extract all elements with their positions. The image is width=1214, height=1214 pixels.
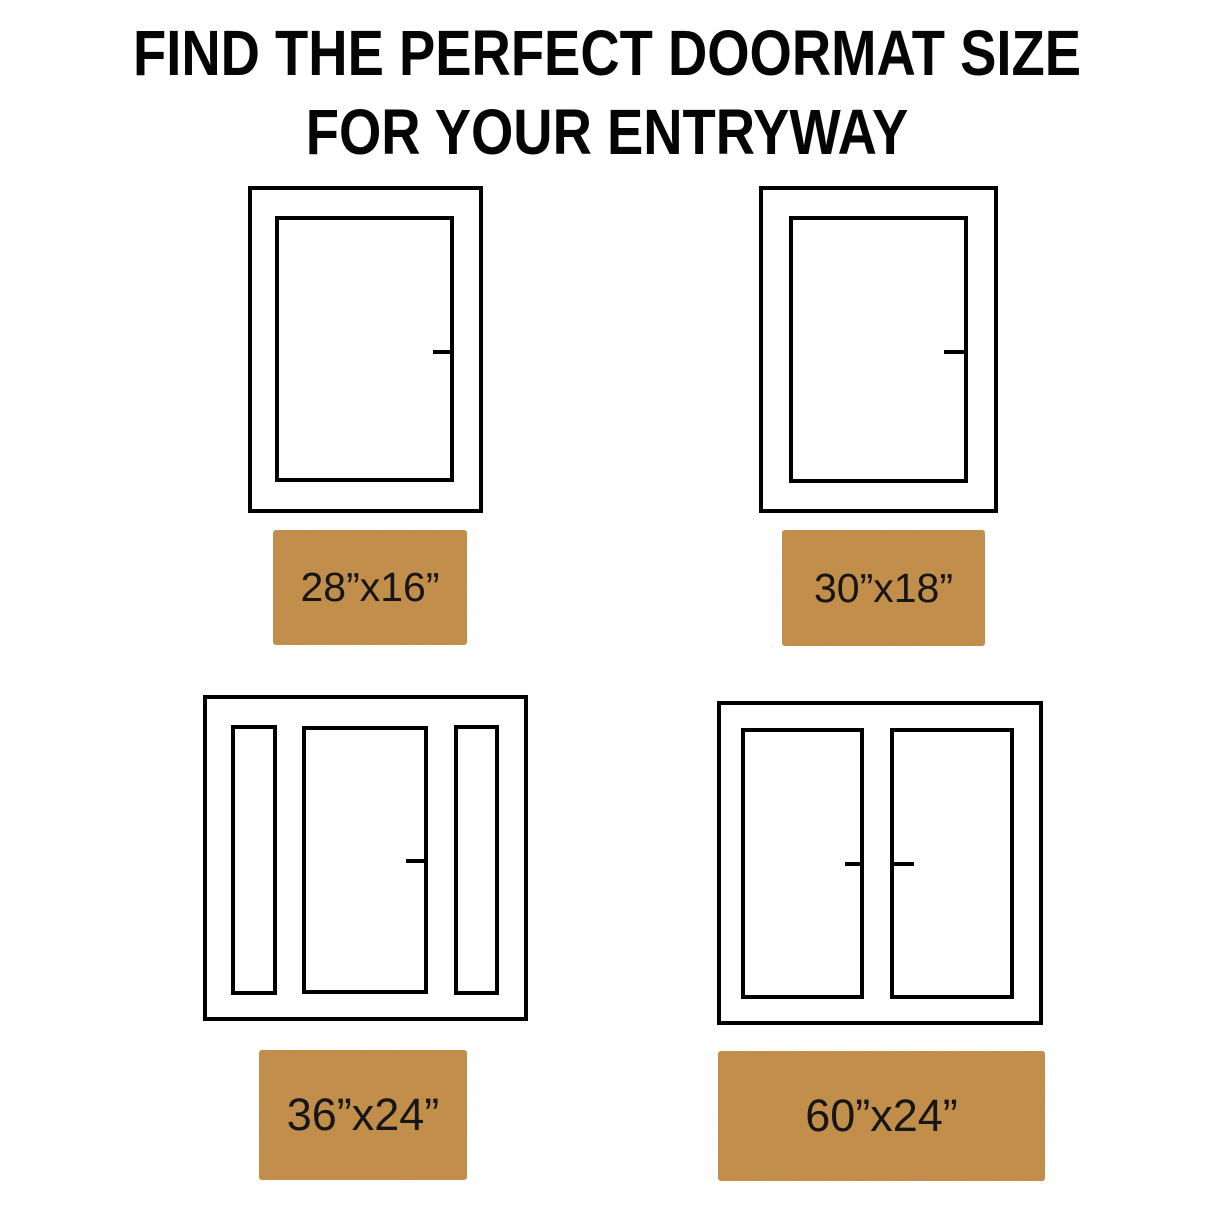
sidelight-left [231, 725, 277, 995]
doormat-size-label: 30”x18” [814, 565, 953, 612]
door-handle-right [890, 862, 914, 866]
door-with-sidelights-diagram [203, 695, 528, 1021]
door-handle [433, 350, 454, 354]
double-door-diagram [717, 701, 1043, 1025]
title-line-1: FIND THE PERFECT DOORMAT SIZE [91, 14, 1123, 93]
single-door-diagram-small [248, 186, 483, 513]
page-title: FIND THE PERFECT DOORMAT SIZE FOR YOUR E… [0, 14, 1214, 172]
door-handle-left [845, 862, 864, 866]
door-handle [944, 350, 968, 354]
doormat-28x16: 28”x16” [273, 530, 467, 645]
doormat-36x24: 36”x24” [259, 1050, 467, 1180]
doormat-30x18: 30”x18” [782, 530, 985, 646]
infographic-canvas: FIND THE PERFECT DOORMAT SIZE FOR YOUR E… [0, 0, 1214, 1214]
doormat-size-label: 36”x24” [287, 1089, 440, 1141]
doormat-size-label: 60”x24” [805, 1090, 958, 1142]
sidelight-right [454, 725, 499, 995]
doormat-60x24: 60”x24” [718, 1051, 1045, 1181]
single-door-diagram-large [759, 186, 998, 513]
doormat-size-label: 28”x16” [300, 564, 439, 611]
door-handle [406, 859, 428, 863]
door-leaf [789, 216, 968, 483]
door-leaf [275, 216, 454, 482]
title-line-2: FOR YOUR ENTRYWAY [91, 93, 1123, 172]
